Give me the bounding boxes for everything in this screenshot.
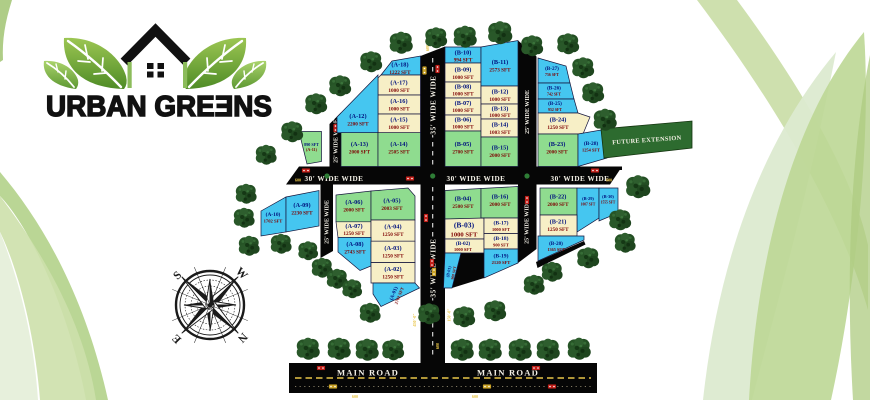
svg-text:1365 SFT: 1365 SFT — [547, 247, 564, 252]
svg-text:(A-02): (A-02) — [384, 266, 401, 273]
svg-text:(B-26): (B-26) — [547, 85, 561, 92]
svg-text:(A-16): (A-16) — [390, 98, 407, 105]
svg-text:1000 SFT: 1000 SFT — [489, 97, 511, 103]
svg-text:30' WIDE WIDE: 30' WIDE WIDE — [447, 175, 506, 183]
svg-text:25' WIDE WIDE: 25' WIDE WIDE — [325, 200, 331, 244]
svg-text:2120 SFT: 2120 SFT — [492, 260, 511, 265]
svg-text:(A-14): (A-14) — [390, 141, 407, 148]
svg-text:1250 SFT: 1250 SFT — [343, 231, 365, 237]
svg-text:450'-0": 450'-0" — [412, 313, 417, 326]
svg-text:(A-04): (A-04) — [384, 224, 401, 231]
svg-text:(A-06): (A-06) — [345, 199, 362, 206]
svg-text:(B-25): (B-25) — [548, 100, 562, 107]
svg-text:1000 SFT: 1000 SFT — [452, 92, 474, 98]
svg-text:2700 SFT: 2700 SFT — [452, 150, 474, 156]
svg-text:1250 SFT: 1250 SFT — [547, 125, 569, 131]
svg-text:(A-18): (A-18) — [391, 62, 408, 69]
svg-text:(A-09): (A-09) — [293, 202, 310, 209]
svg-text:756 SFT: 756 SFT — [545, 73, 559, 77]
svg-text:(B-24): (B-24) — [550, 117, 567, 124]
svg-text:994 SFT: 994 SFT — [454, 57, 473, 63]
svg-text:(B-27): (B-27) — [545, 65, 559, 72]
svg-text:(B-11): (B-11) — [492, 59, 508, 66]
svg-text:(A-08): (A-08) — [346, 241, 363, 248]
svg-text:(B-18): (B-18) — [494, 235, 509, 242]
svg-text:(B-30): (B-30) — [602, 194, 614, 199]
svg-text:150'-0": 150'-0" — [447, 308, 452, 321]
svg-text:600: 600 — [606, 178, 612, 183]
svg-text:1000 SFT: 1000 SFT — [388, 107, 410, 113]
svg-text:(B-28): (B-28) — [584, 140, 599, 147]
svg-text:1250 SFT: 1250 SFT — [382, 232, 404, 238]
svg-text:2000 SFT: 2000 SFT — [489, 202, 511, 208]
svg-text:(B-09): (B-09) — [455, 67, 472, 74]
svg-text:(A-17): (A-17) — [390, 80, 407, 87]
svg-text:(B-03): (B-03) — [454, 221, 475, 230]
svg-text:(A-12): (A-12) — [349, 113, 366, 120]
svg-text:MAIN ROAD: MAIN ROAD — [337, 368, 399, 378]
svg-text:(B-15): (B-15) — [492, 145, 509, 152]
svg-text:(A-07): (A-07) — [345, 223, 362, 230]
svg-text:MAIN ROAD: MAIN ROAD — [477, 368, 539, 378]
svg-text:2573 SFT: 2573 SFT — [489, 68, 511, 74]
svg-text:(B-16): (B-16) — [492, 194, 509, 201]
svg-text:2000 SFT: 2000 SFT — [547, 202, 569, 208]
svg-text:1007 SFT: 1007 SFT — [581, 203, 596, 207]
svg-text:900 SFT: 900 SFT — [493, 242, 509, 247]
svg-text:(B-06): (B-06) — [455, 117, 472, 124]
svg-text:(B-17): (B-17) — [494, 220, 509, 227]
svg-text:(A-10): (A-10) — [266, 211, 281, 218]
svg-text:1000 SFT: 1000 SFT — [452, 75, 474, 81]
svg-text:URBAN GREƎNS: URBAN GREƎNS — [46, 91, 272, 123]
svg-text:(B-04): (B-04) — [455, 196, 472, 203]
svg-text:(B-19): (B-19) — [494, 253, 509, 260]
svg-text:(A-13): (A-13) — [351, 141, 368, 148]
svg-text:1250 SFT: 1250 SFT — [382, 254, 404, 260]
svg-text:1702 SFT: 1702 SFT — [264, 219, 283, 224]
svg-text:(B-13): (B-13) — [492, 106, 509, 113]
svg-text:2003 SFT: 2003 SFT — [381, 206, 403, 212]
svg-text:2200 SFT: 2200 SFT — [347, 122, 369, 128]
svg-text:952 SFT: 952 SFT — [548, 108, 562, 112]
svg-text:2743 SFT: 2743 SFT — [344, 250, 366, 256]
svg-text:(B-07): (B-07) — [455, 100, 472, 107]
svg-text:(B-12): (B-12) — [492, 89, 509, 96]
svg-text:1000 SFT: 1000 SFT — [454, 247, 472, 252]
svg-text:35' WIDE WIDE: 35' WIDE WIDE — [430, 76, 438, 135]
svg-text:25' WIDE WIDE: 25' WIDE WIDE — [525, 200, 531, 244]
svg-text:2230 SFT: 2230 SFT — [291, 211, 313, 217]
svg-text:1000 SFT: 1000 SFT — [388, 88, 410, 94]
svg-text:1250 SFT: 1250 SFT — [547, 227, 569, 233]
svg-text:600: 600 — [352, 394, 358, 399]
svg-text:600: 600 — [472, 394, 478, 399]
svg-text:1254 SFT: 1254 SFT — [582, 148, 600, 153]
svg-text:742 SFT: 742 SFT — [547, 93, 561, 97]
svg-text:(B-21): (B-21) — [550, 219, 567, 226]
svg-text:(B-29): (B-29) — [582, 196, 594, 201]
svg-text:25' WIDE WIDE: 25' WIDE WIDE — [525, 90, 531, 134]
svg-text:2500 SFT: 2500 SFT — [452, 204, 474, 210]
svg-text:600: 600 — [295, 178, 301, 183]
svg-text:30' WIDE WIDE: 30' WIDE WIDE — [551, 175, 610, 183]
svg-text:(A-15): (A-15) — [390, 117, 407, 124]
svg-text:(B-10): (B-10) — [455, 50, 472, 57]
svg-text:(B-20): (B-20) — [549, 240, 563, 247]
svg-text:1000 SFT: 1000 SFT — [451, 232, 479, 239]
svg-text:2000 SFT: 2000 SFT — [489, 153, 511, 159]
svg-text:2505 SFT: 2505 SFT — [388, 150, 410, 156]
svg-text:(A-05): (A-05) — [383, 198, 400, 205]
svg-text:30' WIDE WIDE: 30' WIDE WIDE — [305, 175, 364, 183]
svg-text:2000 SFT: 2000 SFT — [349, 150, 371, 156]
svg-text:1000 SFT: 1000 SFT — [452, 108, 474, 114]
svg-text:1003 SFT: 1003 SFT — [489, 130, 511, 136]
svg-text:1000 SFT: 1000 SFT — [489, 113, 511, 119]
svg-text:(B-23): (B-23) — [549, 141, 566, 148]
svg-text:(B-08): (B-08) — [455, 84, 472, 91]
svg-text:2000 SFT: 2000 SFT — [546, 150, 568, 156]
svg-text:2000 SFT: 2000 SFT — [343, 208, 365, 214]
svg-text:1555 SFT: 1555 SFT — [601, 201, 616, 205]
svg-text:1000 SFT: 1000 SFT — [452, 125, 474, 131]
svg-text:(A-03): (A-03) — [384, 245, 401, 252]
svg-text:600: 600 — [435, 343, 440, 349]
svg-text:(A-11): (A-11) — [306, 147, 318, 152]
svg-text:1250 SFT: 1250 SFT — [382, 275, 404, 281]
svg-text:1000 SFT: 1000 SFT — [492, 227, 510, 232]
svg-text:(B-14): (B-14) — [492, 122, 509, 129]
svg-text:(B-02): (B-02) — [456, 240, 471, 247]
svg-text:(B-22): (B-22) — [550, 194, 567, 201]
svg-text:1000 SFT: 1000 SFT — [388, 125, 410, 131]
svg-text:(B-05): (B-05) — [455, 141, 472, 148]
